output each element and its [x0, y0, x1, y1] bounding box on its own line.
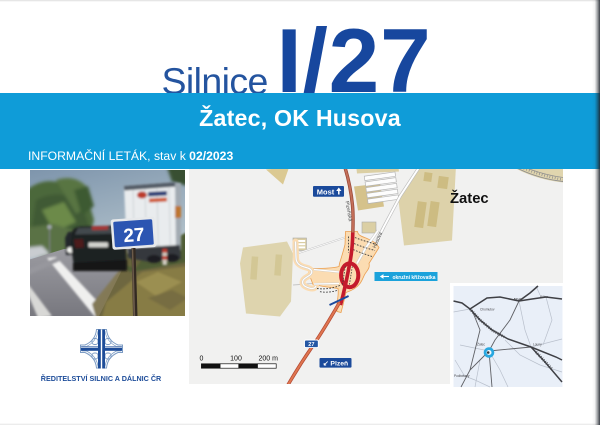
svg-text:200 m: 200 m [259, 355, 279, 362]
svg-text:100: 100 [230, 355, 242, 362]
svg-text:Podbořany: Podbořany [454, 374, 470, 378]
svg-text:Žatec: Žatec [477, 342, 485, 347]
svg-text:Louny: Louny [533, 343, 542, 347]
svg-text:Most: Most [514, 298, 522, 302]
svg-text:Žatec: Žatec [450, 189, 489, 207]
svg-text:Bílina: Bílina [540, 295, 548, 299]
svg-text:27: 27 [122, 224, 145, 246]
svg-text:↙ Plzeň: ↙ Plzeň [323, 360, 348, 367]
svg-text:Chomutov: Chomutov [480, 308, 495, 312]
svg-text:okružní křižovatka: okružní křižovatka [393, 274, 437, 280]
svg-text:27: 27 [308, 341, 314, 347]
svg-text:0: 0 [200, 355, 204, 362]
svg-text:Most: Most [317, 187, 335, 196]
